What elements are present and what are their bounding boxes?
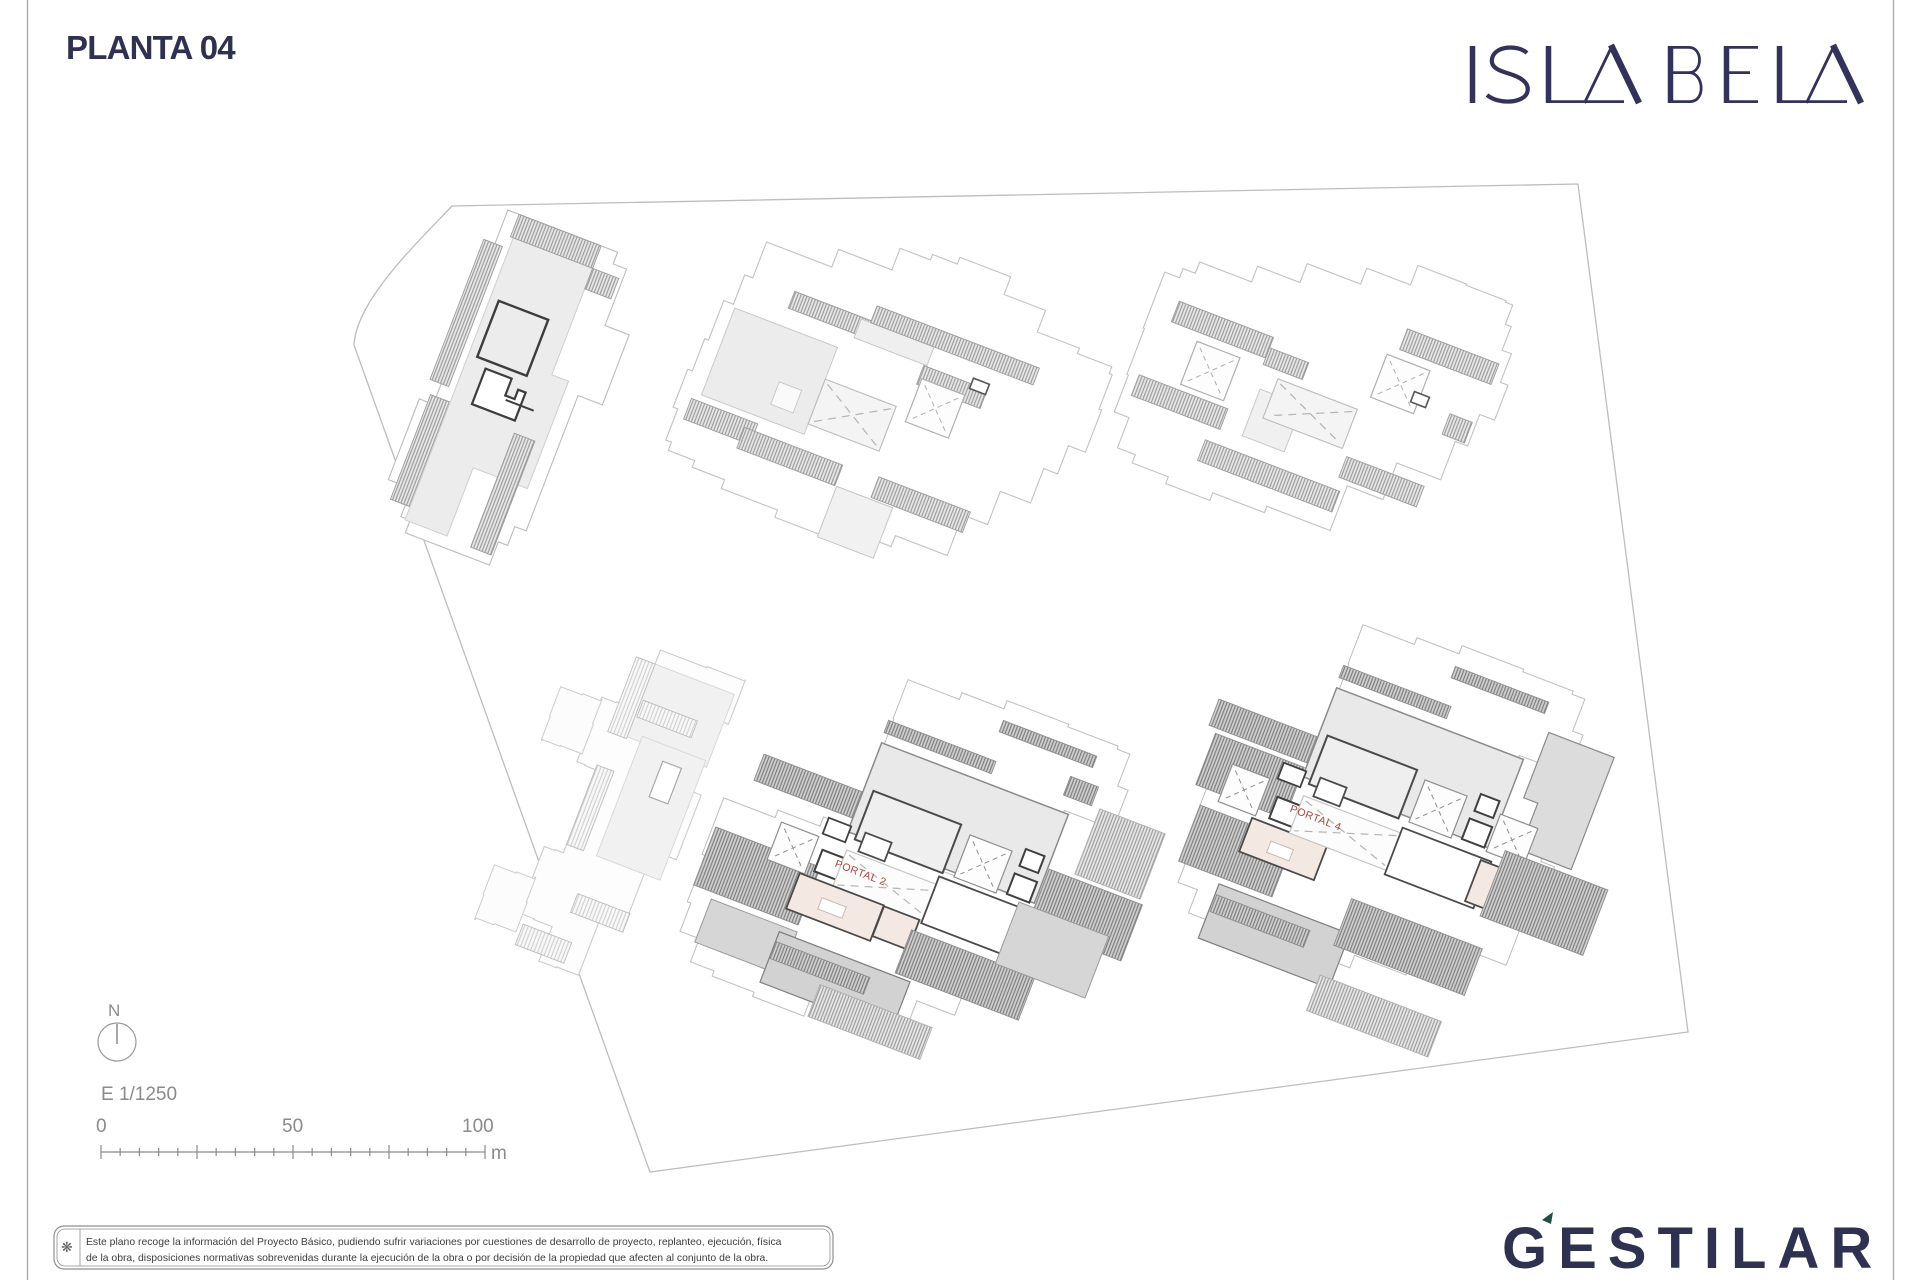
svg-text:Este plano recoge la informaci: Este plano recoge la información del Pro…	[86, 1237, 782, 1248]
svg-text:❋: ❋	[61, 1239, 73, 1255]
svg-text:de la obra, disposiciones norm: de la obra, disposiciones normativas sob…	[86, 1253, 768, 1264]
svg-text:100: 100	[462, 1116, 494, 1137]
svg-text:m: m	[491, 1143, 507, 1164]
svg-text:GESTILAR: GESTILAR	[1502, 1216, 1883, 1280]
svg-text:0: 0	[96, 1116, 107, 1137]
svg-text:E 1/1250: E 1/1250	[101, 1084, 177, 1105]
svg-text:PLANTA 04: PLANTA 04	[66, 29, 236, 66]
svg-text:N: N	[108, 1001, 120, 1020]
svg-text:50: 50	[282, 1116, 303, 1137]
